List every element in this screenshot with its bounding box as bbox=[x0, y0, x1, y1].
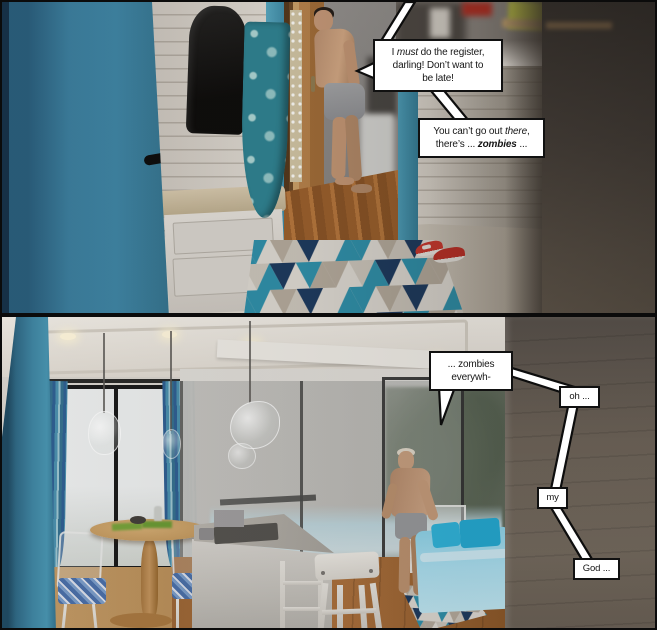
panel-top: I must do the register,darling! Don’t wa… bbox=[0, 0, 657, 315]
panel1-bubble-connectors bbox=[2, 2, 657, 315]
speech-bubble-god: God ... bbox=[573, 558, 620, 580]
speech-bubble-must: I must do the register,darling! Don’t wa… bbox=[373, 39, 503, 92]
speech-bubble-my: my bbox=[537, 487, 568, 509]
connector-my-god bbox=[550, 503, 592, 563]
comic-page: I must do the register,darling! Don’t wa… bbox=[0, 0, 660, 630]
connector-oh-my bbox=[551, 402, 578, 491]
panel2-bubble-connectors bbox=[2, 317, 657, 630]
speech-bubble-everywhere: ... zombieseverywh- bbox=[429, 351, 513, 391]
speech-bubble-warning: You can’t go out there,there’s ... zombi… bbox=[418, 118, 545, 158]
everywhere-bubble-tail bbox=[439, 387, 455, 425]
speech-bubble-oh: oh ... bbox=[559, 386, 600, 408]
panel-bottom: ... zombieseverywh- oh ... my God ... bbox=[0, 315, 657, 630]
